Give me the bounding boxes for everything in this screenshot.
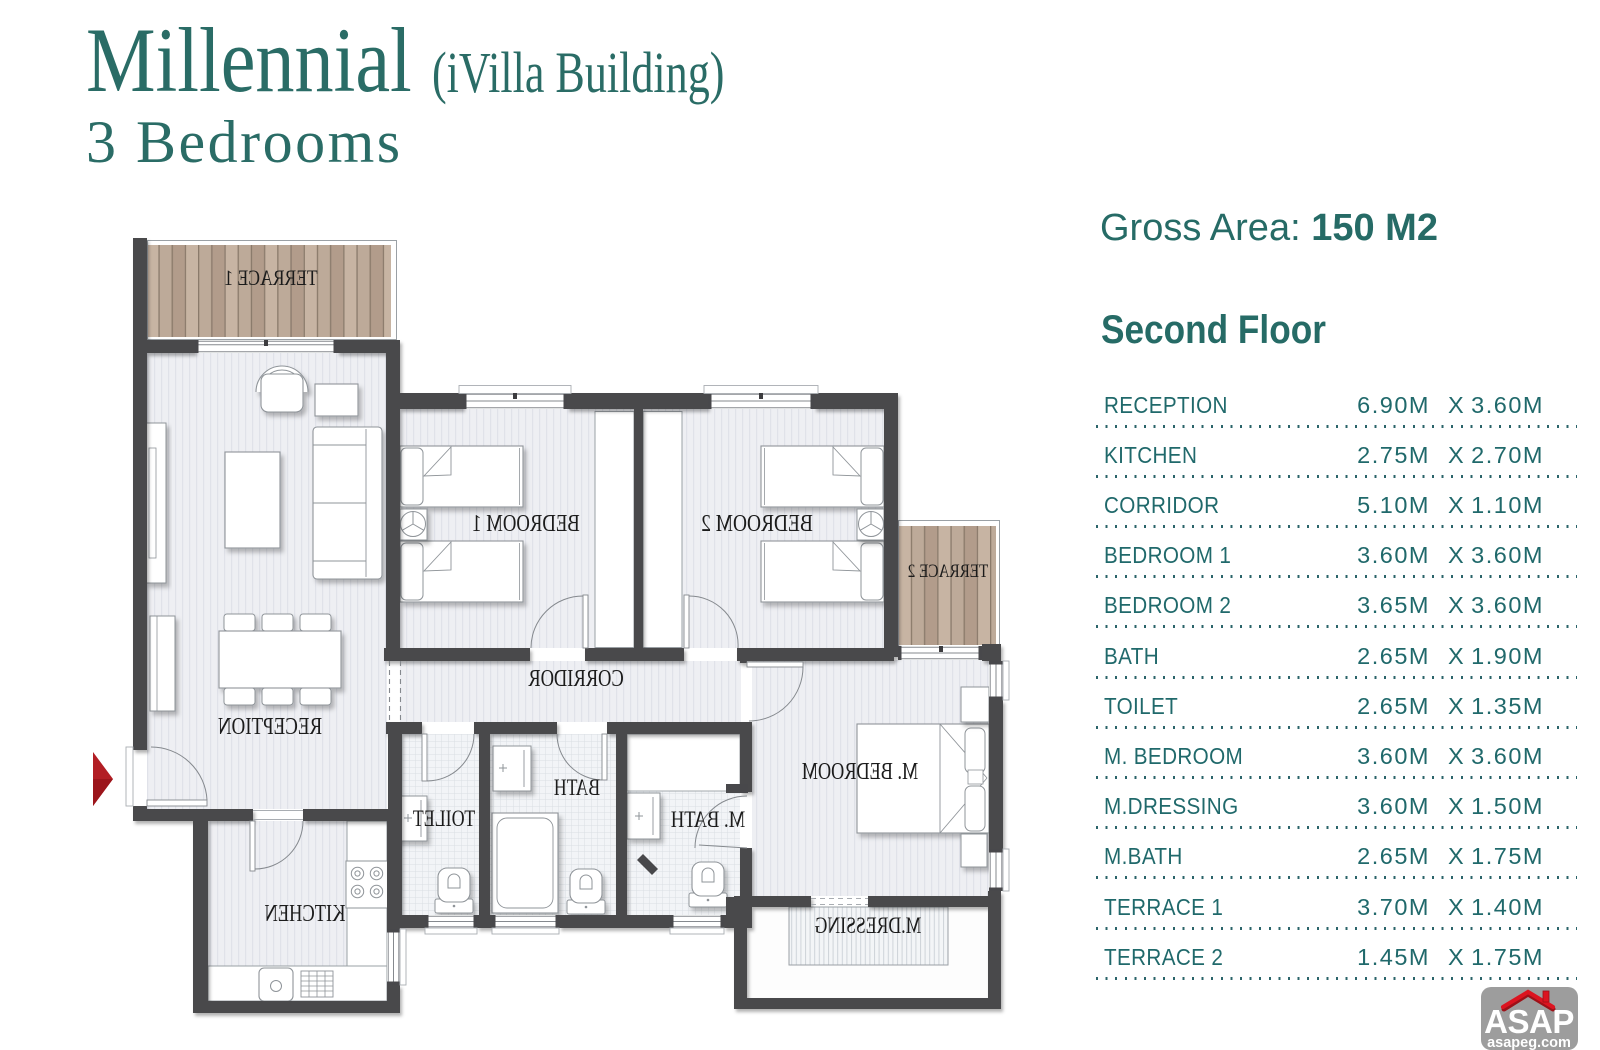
svg-text:BATH: BATH bbox=[554, 776, 600, 801]
svg-text:M. BATH: M. BATH bbox=[671, 806, 745, 832]
svg-text:TOILET: TOILET bbox=[412, 807, 475, 832]
svg-text:TERRACE 2: TERRACE 2 bbox=[908, 560, 989, 581]
svg-text:KITCHEN: KITCHEN bbox=[264, 900, 345, 927]
svg-text:RECEPTION: RECEPTION bbox=[218, 713, 323, 740]
svg-text:asapeg.com: asapeg.com bbox=[1487, 1035, 1571, 1050]
svg-text:M.DRESSING: M.DRESSING bbox=[814, 914, 921, 939]
svg-text:CORRIDOR: CORRIDOR bbox=[528, 665, 624, 692]
svg-text:TERRACE 1: TERRACE 1 bbox=[224, 266, 317, 290]
svg-text:M. BEDROOM: M. BEDROOM bbox=[802, 758, 919, 785]
svg-text:BEDROOM 1: BEDROOM 1 bbox=[472, 510, 580, 537]
svg-text:BEDROOM 2: BEDROOM 2 bbox=[701, 510, 813, 536]
